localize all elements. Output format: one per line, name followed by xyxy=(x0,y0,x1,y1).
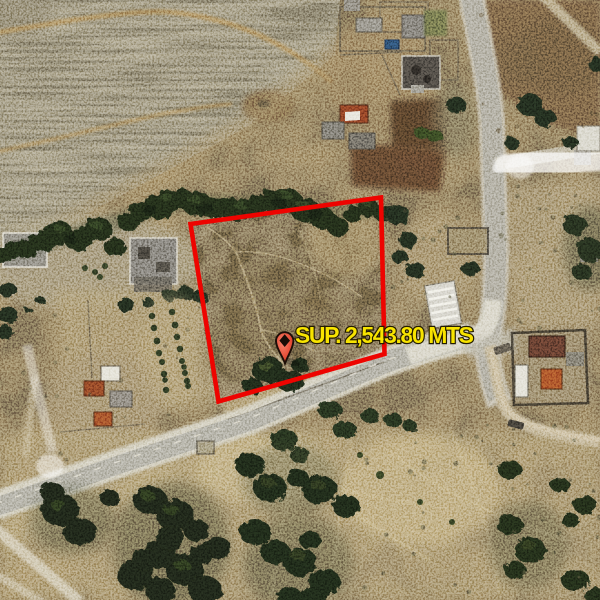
svg-text:SUP. 2,543.80 MTS: SUP. 2,543.80 MTS xyxy=(295,322,474,348)
